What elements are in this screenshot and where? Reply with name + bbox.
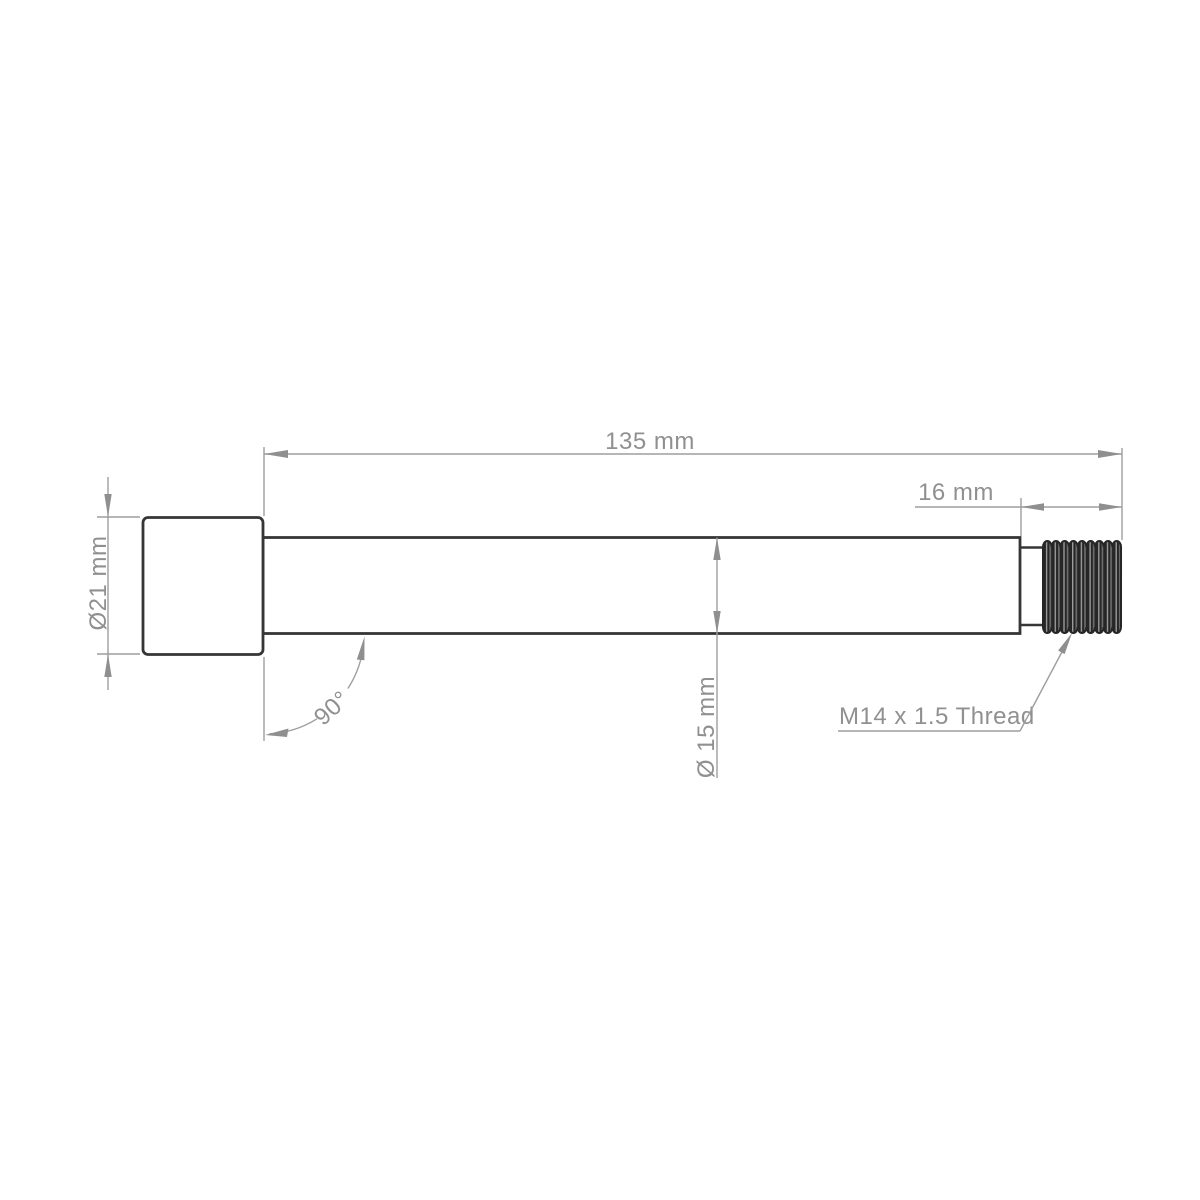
axle-neck (1020, 548, 1044, 626)
thread-callout: M14 x 1.5 Thread (838, 633, 1072, 731)
arrowhead-down-icon (104, 494, 111, 517)
axle-shaft (263, 538, 1020, 634)
arrowhead-left-icon (265, 729, 289, 738)
arrowhead-right-icon (1099, 503, 1122, 511)
dim-thread-length: 16 mm (915, 479, 1122, 511)
angle-arc-lower (269, 719, 317, 734)
arrowhead-up-icon (357, 637, 365, 661)
dim-label-overall-length: 135 mm (605, 428, 695, 455)
dim-label-thread-length: 16 mm (918, 479, 994, 506)
dim-label-head-angle: 90° (309, 686, 355, 731)
arrowhead-left-icon (264, 450, 288, 458)
dim-overall-length: 135 mm (264, 428, 1122, 458)
arrowhead-leader-icon (1058, 633, 1072, 654)
thread-spec-label: M14 x 1.5 Thread (839, 703, 1035, 730)
dim-head-angle: 90° (265, 637, 365, 738)
dim-head-diameter: Ø21 mm (85, 477, 112, 690)
thread-section (1043, 541, 1121, 633)
callout-leader-line (1020, 650, 1063, 731)
arrowhead-left-icon (1021, 503, 1044, 511)
arrowhead-right-icon (1098, 450, 1122, 458)
technical-drawing-canvas: 135 mm 16 mm Ø21 mm Ø 15 mm 90° M14 x 1.… (0, 0, 1200, 1200)
arrowhead-up-icon (104, 654, 111, 677)
axle-head (143, 518, 263, 655)
axle-part (143, 518, 1121, 655)
dim-label-head-diameter: Ø21 mm (85, 535, 112, 630)
dim-label-shaft-diameter: Ø 15 mm (693, 676, 720, 778)
technical-drawing-page: 135 mm 16 mm Ø21 mm Ø 15 mm 90° M14 x 1.… (0, 0, 1200, 1200)
